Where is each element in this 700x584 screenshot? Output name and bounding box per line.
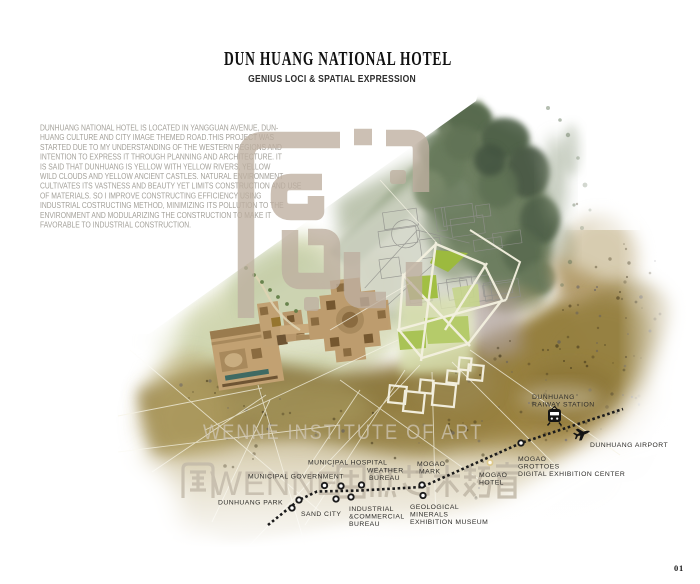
svg-text:MOGAO: MOGAO [479, 472, 507, 479]
svg-text:FAVORABLE TO INDUSTRIAL CONSTR: FAVORABLE TO INDUSTRIAL CONSTRUCTION. [40, 220, 191, 230]
svg-text:MUNICIPAL HOSPITAL: MUNICIPAL HOSPITAL [308, 460, 387, 467]
svg-text:GEOLOGICAL: GEOLOGICAL [410, 504, 459, 511]
svg-text:&COMMERCIAL: &COMMERCIAL [349, 514, 405, 521]
svg-text:ENVIRONMENT AND MODULARIZING T: ENVIRONMENT AND MODULARIZING THE CONSTRU… [40, 210, 272, 220]
svg-text:BUREAU: BUREAU [369, 475, 400, 482]
svg-text:DUNHUANG AIRPORT: DUNHUANG AIRPORT [590, 442, 668, 449]
svg-text:MINERALS: MINERALS [410, 512, 448, 519]
svg-text:DIGITAL EXHIBITION CENTER: DIGITAL EXHIBITION CENTER [518, 471, 625, 478]
svg-text:HOTEL: HOTEL [479, 480, 504, 487]
svg-text:OF MATERIALS. SO I IMPROVE CON: OF MATERIALS. SO I IMPROVE CONSTRUCTING … [40, 191, 262, 201]
svg-text:MOGAO: MOGAO [518, 456, 546, 463]
svg-text:WENNE: WENNE [210, 465, 339, 503]
svg-text:IS SAID THAT DUNHUANG IS YELLO: IS SAID THAT DUNHUANG IS YELLOW WITH YEL… [40, 162, 270, 172]
svg-text:MARK: MARK [419, 469, 440, 476]
svg-text:RAIWAY STATION: RAIWAY STATION [532, 402, 595, 409]
svg-text:DUNHUANG: DUNHUANG [532, 394, 575, 401]
svg-text:BUREAU: BUREAU [349, 521, 380, 528]
svg-text:WENNE INSTITUTE OF ART: WENNE INSTITUTE OF ART [203, 421, 483, 444]
svg-text:DUN HUANG NATIONAL HOTEL: DUN HUANG NATIONAL HOTEL [224, 47, 452, 69]
svg-text:DUNHUANG NATIONAL HOTEL IS LOC: DUNHUANG NATIONAL HOTEL IS LOCATED IN YA… [40, 123, 279, 133]
svg-text:HUANG CULTURE AND CITY IMAGE T: HUANG CULTURE AND CITY IMAGE THEMED ROAD… [40, 133, 274, 143]
svg-text:SAND CITY: SAND CITY [301, 511, 341, 518]
svg-text:EXHIBITION MUSEUM: EXHIBITION MUSEUM [410, 519, 488, 526]
svg-text:MOGAO: MOGAO [417, 461, 445, 468]
svg-text:GENIUS LOCI & SPATIAL EXPRESSI: GENIUS LOCI & SPATIAL EXPRESSION [248, 72, 416, 84]
svg-text:INDUSTRIAL: INDUSTRIAL [349, 506, 394, 513]
svg-text:01: 01 [674, 563, 684, 573]
svg-text:GROTTOES: GROTTOES [518, 464, 560, 471]
svg-text:MUNICIPAL GOVERNMENT: MUNICIPAL GOVERNMENT [248, 474, 344, 481]
svg-text:CULTIVATES ITS VASTNESS AND BE: CULTIVATES ITS VASTNESS AND BEAUTY YET L… [40, 181, 302, 191]
svg-text:DUNHUANG PARK: DUNHUANG PARK [218, 500, 283, 507]
svg-text:WEATHER: WEATHER [367, 468, 404, 475]
